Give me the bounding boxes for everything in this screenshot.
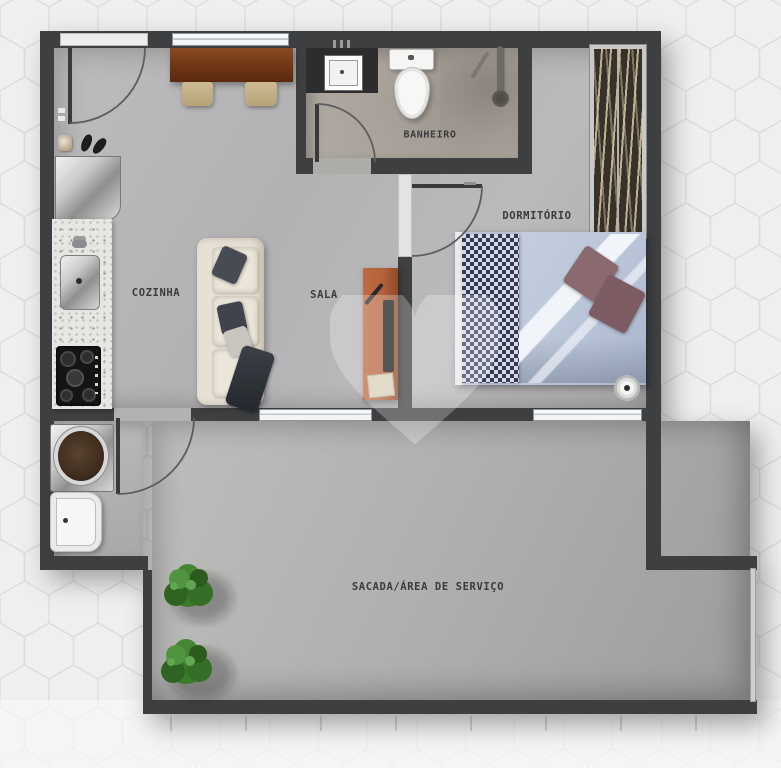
room-label-cozinha: COZINHA xyxy=(132,287,180,299)
bathroom-door-swing xyxy=(317,104,375,162)
floor-plan-image: COZINHA SALA BANHEIRO DORMITÓRIO SACADA/… xyxy=(0,0,781,768)
door-swings-and-plants xyxy=(0,0,781,768)
room-label-dormitorio: DORMITÓRIO xyxy=(502,210,571,222)
plant-icon xyxy=(161,639,233,699)
plant-icon xyxy=(164,564,232,622)
room-label-sacada: SACADA/ÁREA DE SERVIÇO xyxy=(352,581,504,593)
room-label-banheiro: BANHEIRO xyxy=(404,130,457,141)
room-label-sala: SALA xyxy=(310,289,338,301)
floor-plan: COZINHA SALA BANHEIRO DORMITÓRIO SACADA/… xyxy=(0,0,781,768)
bedroom-door-swing xyxy=(412,182,482,256)
laundry-door-swing xyxy=(118,418,194,494)
entrance-door-swing xyxy=(58,48,145,124)
